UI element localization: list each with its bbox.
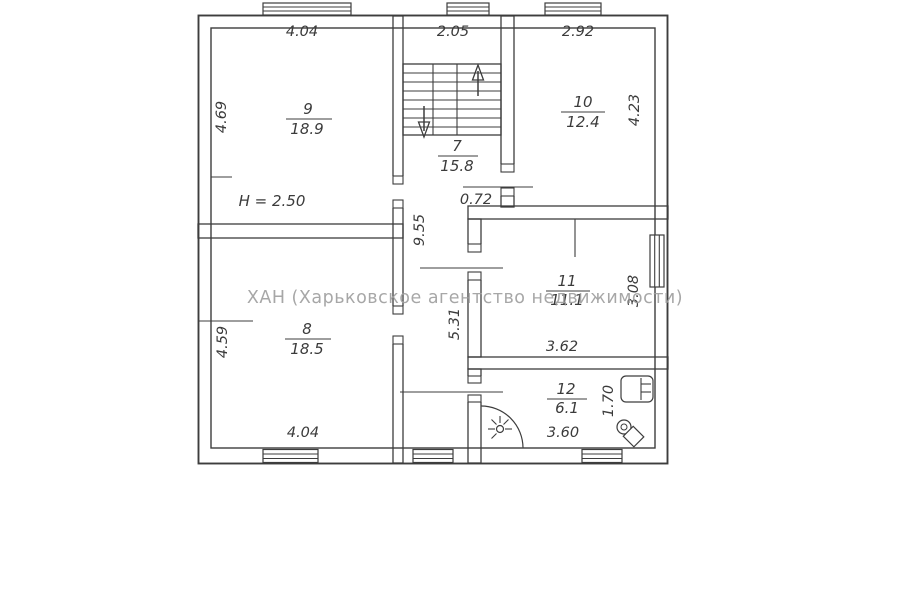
door-room8 xyxy=(392,306,405,344)
window-bottom-room12 xyxy=(582,450,622,463)
window-top-room10 xyxy=(545,3,601,15)
room-7-area: 15.8 xyxy=(440,157,473,175)
agency-watermark: ХАН (Харьковское агентство недвижимости) xyxy=(247,288,683,308)
dim-top-room10: 2.92 xyxy=(562,24,594,40)
sink-icon xyxy=(621,376,653,402)
room-8-area: 18.5 xyxy=(290,340,323,358)
room-10-number: 10 xyxy=(573,93,592,111)
dim-top-stairs: 2.05 xyxy=(437,24,469,40)
room-12-number: 12 xyxy=(556,380,575,398)
window-top-stairs xyxy=(447,3,489,15)
room-12-area: 6.1 xyxy=(555,399,579,417)
room-10-area: 12.4 xyxy=(566,113,599,131)
room-9-area: 18.9 xyxy=(290,120,323,138)
floor-plan-image: 9 18.9 7 15.8 10 12.4 8 18.5 11 11.1 12 … xyxy=(0,0,897,593)
window-top-room9 xyxy=(263,3,351,15)
dim-corridor-lower: 5.31 xyxy=(447,308,463,340)
door-room11 xyxy=(467,244,483,280)
dim-corridor-upper: 9.55 xyxy=(412,214,428,246)
door-room10 xyxy=(500,164,516,196)
room-7-number: 7 xyxy=(452,137,462,155)
room-9-number: 9 xyxy=(303,100,313,118)
dim-left-room9: 4.69 xyxy=(214,101,230,133)
floor-plan-page: 9 18.9 7 15.8 10 12.4 8 18.5 11 11.1 12 … xyxy=(0,0,897,593)
dim-left-room8: 4.59 xyxy=(215,326,231,358)
dim-door-width: 0.72 xyxy=(460,192,492,208)
dim-room11-width: 3.62 xyxy=(546,339,578,355)
window-right-room11 xyxy=(650,235,664,287)
dim-bottom-room12: 3.60 xyxy=(547,425,579,441)
door-room9 xyxy=(392,176,405,208)
ceiling-height-label: H = 2.50 xyxy=(239,192,306,210)
dim-right-room12: 1.70 xyxy=(601,385,617,417)
dim-bottom-room8: 4.04 xyxy=(287,425,319,441)
room-8-number: 8 xyxy=(302,320,312,338)
door-room12 xyxy=(467,376,483,402)
dim-top-room9: 4.04 xyxy=(286,24,318,40)
window-bottom-room8 xyxy=(263,450,318,463)
window-bottom-corridor xyxy=(413,450,453,463)
dim-right-room10: 4.23 xyxy=(627,94,643,126)
